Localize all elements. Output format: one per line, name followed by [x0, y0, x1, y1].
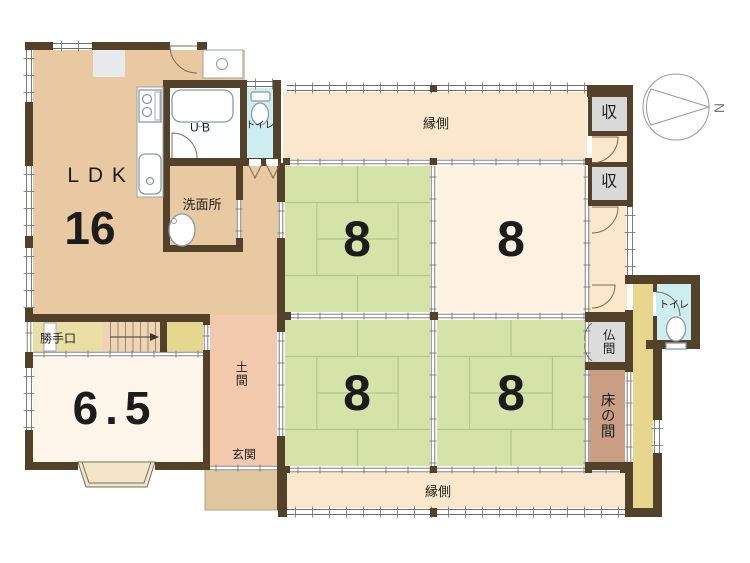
katteguchi-label: 勝手口: [40, 333, 76, 346]
bathtub: [172, 90, 233, 122]
butsuma-label: 仏間: [600, 329, 613, 356]
genkan-label: 玄関: [232, 449, 256, 462]
toilet-right-label: トイレ: [659, 301, 689, 312]
compass-rose: [643, 74, 709, 140]
corridor-floor: [633, 284, 653, 508]
engawa-bottom-label: 縁側: [425, 485, 451, 499]
landing-floor: [167, 322, 203, 352]
toilet-right-tank: [666, 343, 686, 349]
toilet-top-label: トイレ: [246, 121, 275, 131]
ldk-name-label: LDK: [67, 165, 134, 187]
room8-nw-label: 8: [343, 213, 371, 266]
kitchen-sink: [139, 154, 161, 194]
doma-label: 土間: [235, 361, 248, 387]
floor-plan-drawing: [0, 0, 750, 563]
ldk-size-label: 16: [64, 204, 115, 252]
engawa-bottom-floor: [287, 472, 625, 508]
washbasin-faucet-icon: [172, 219, 177, 224]
unit-bath-label: U B: [190, 122, 210, 135]
room8-sw-label: 8: [343, 367, 371, 420]
engawa-top-label: 縁側: [423, 117, 449, 131]
stove-panel: [155, 92, 160, 120]
room8-ne-label: 8: [497, 213, 525, 266]
water-heater-dial-icon: [217, 59, 228, 70]
tokonoma-label: 床の間: [598, 393, 613, 440]
compass-north-label: N: [712, 103, 727, 113]
burner-icon: [143, 108, 152, 117]
north-needle-icon: [646, 89, 709, 125]
closet-top-label: 収: [601, 106, 617, 123]
burner-icon: [143, 95, 152, 104]
kitchen-appliance: [93, 47, 125, 77]
room8-se-label: 8: [497, 367, 525, 420]
room65-label: 6.5: [73, 384, 158, 432]
toilet-top-tank: [251, 92, 270, 101]
washroom-label: 洗面所: [182, 198, 221, 212]
toilet-right-bowl: [667, 317, 686, 341]
east-hall-floor: [588, 207, 627, 312]
bay-window: [78, 462, 155, 487]
room-floors: [33, 47, 691, 510]
closet-vestibule-floor: [592, 136, 627, 163]
floor-plan: LDK 16 U B トイレ 洗面所 縁側 収 収 8 8 8 8 勝手口 6.…: [0, 0, 750, 563]
porch-floor: [205, 470, 280, 510]
compass-circle: [643, 74, 709, 140]
sink-drain-icon: [147, 178, 154, 185]
closet-mid-label: 収: [601, 175, 617, 192]
